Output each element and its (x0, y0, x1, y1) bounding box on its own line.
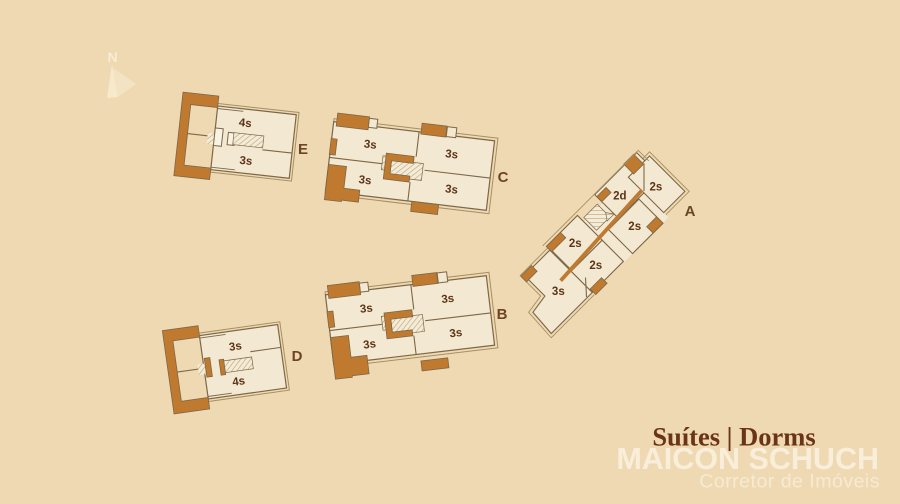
svg-text:N: N (107, 49, 117, 65)
svg-text:C: C (498, 169, 509, 186)
svg-text:4s: 4s (238, 117, 252, 130)
svg-text:2s: 2s (650, 181, 663, 193)
svg-text:A: A (685, 203, 696, 220)
svg-text:3s: 3s (358, 174, 372, 187)
svg-text:3s: 3s (444, 183, 458, 196)
svg-text:Corretor de Imóveis: Corretor de Imóveis (699, 471, 880, 493)
svg-text:E: E (298, 141, 308, 158)
svg-text:3s: 3s (449, 327, 463, 340)
svg-text:3s: 3s (445, 148, 459, 161)
svg-text:3s: 3s (228, 340, 242, 354)
svg-text:D: D (292, 348, 303, 365)
svg-text:3s: 3s (363, 138, 377, 151)
svg-text:4s: 4s (232, 375, 246, 389)
svg-text:3s: 3s (441, 293, 455, 306)
svg-text:2d: 2d (613, 191, 626, 203)
svg-text:3s: 3s (359, 302, 373, 315)
svg-text:2s: 2s (628, 221, 641, 233)
svg-text:3s: 3s (239, 155, 253, 168)
svg-text:2s: 2s (569, 238, 582, 250)
svg-text:2s: 2s (589, 260, 602, 272)
svg-text:B: B (497, 306, 508, 323)
svg-text:3s: 3s (552, 286, 565, 298)
svg-text:3s: 3s (363, 338, 377, 351)
